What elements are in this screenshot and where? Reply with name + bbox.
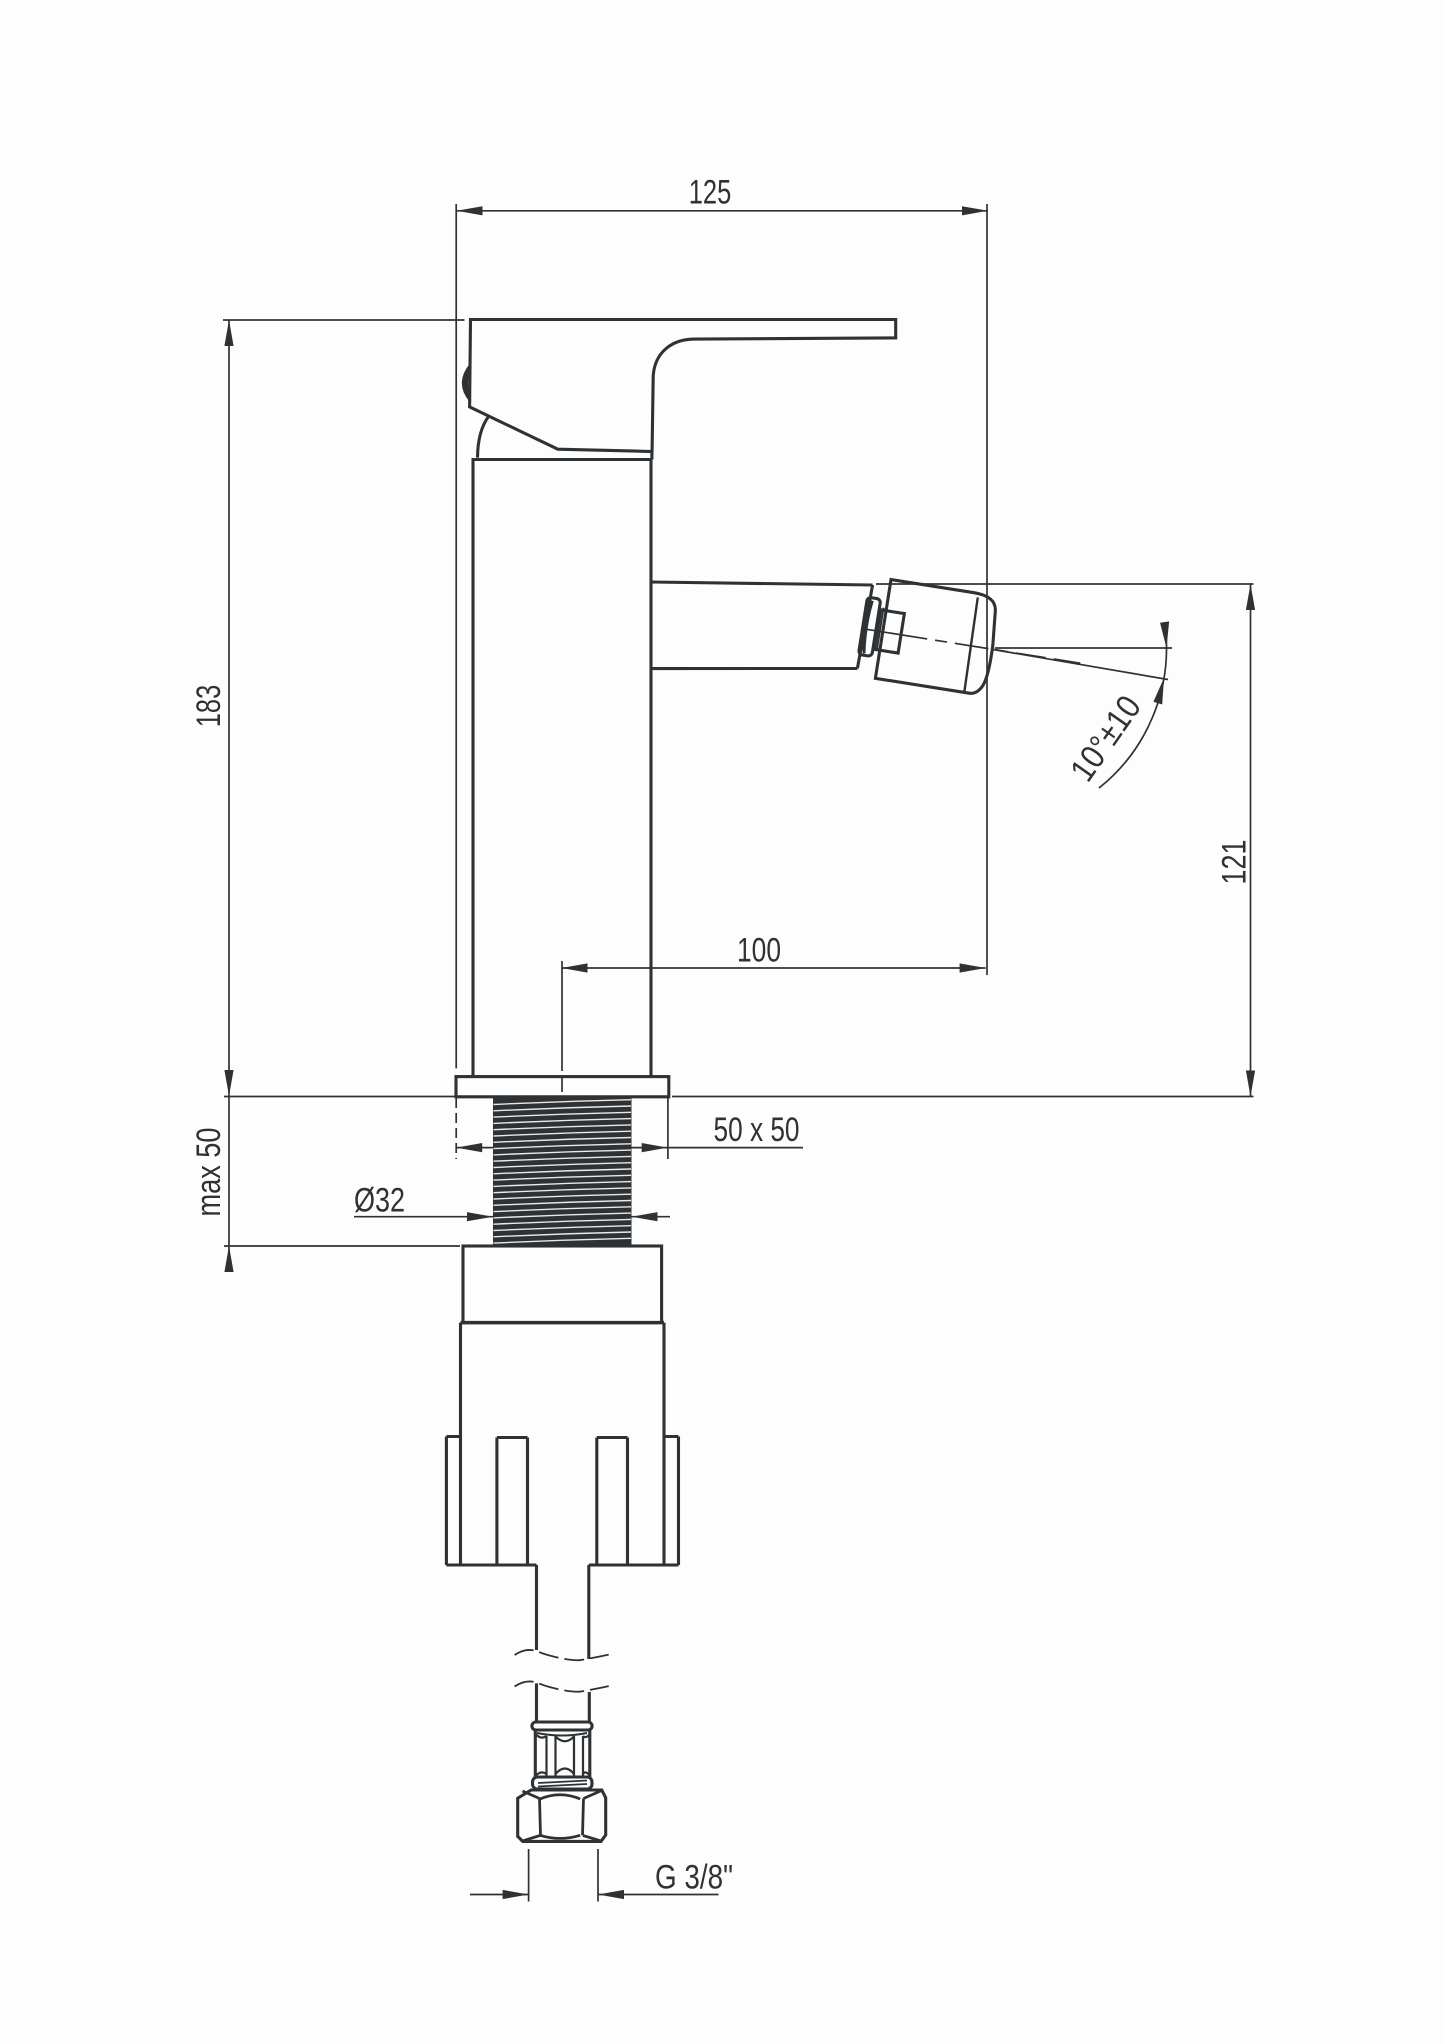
svg-text:50 x 50: 50 x 50 [714, 1111, 800, 1149]
svg-text:G 3/8": G 3/8" [655, 1859, 733, 1897]
svg-text:Ø32: Ø32 [354, 1182, 405, 1220]
svg-text:121: 121 [1216, 840, 1254, 885]
svg-text:10°±10: 10°±10 [1063, 689, 1149, 789]
svg-text:125: 125 [689, 174, 732, 212]
svg-text:100: 100 [737, 932, 781, 970]
svg-text:183: 183 [190, 685, 228, 728]
svg-text:max 50: max 50 [190, 1128, 228, 1217]
